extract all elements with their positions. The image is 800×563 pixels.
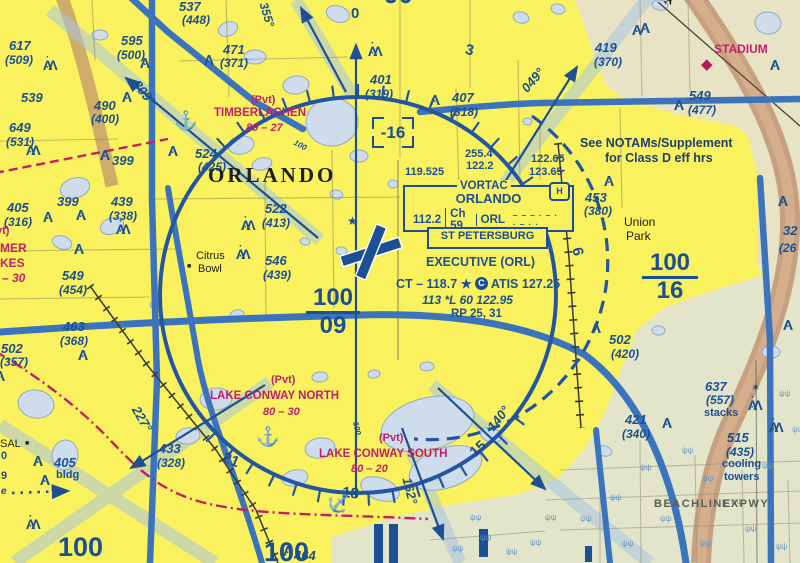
- obstacle-icon-10: Λ: [430, 93, 440, 108]
- label-439-30: (439): [263, 269, 291, 281]
- map-labels: VORTAC ORLANDO 112.2 Ch 59 ORL ‒ ‒ ‒ · ‒…: [0, 0, 800, 563]
- label-370-36: (370): [594, 56, 622, 68]
- aeronautical-chart[interactable]: ψψψψψψψψψψψψψψψψψψψψψψψψψψψψψψψψψψψψψψψψ…: [0, 0, 800, 563]
- hiwas-h-icon: H: [549, 182, 570, 201]
- label-pvt-62: (Pvt): [271, 375, 295, 386]
- obstacle-icon-21: Λ: [33, 454, 43, 469]
- label-522-27: 522: [265, 202, 287, 215]
- obstacle-icon-18: Λ: [778, 194, 788, 209]
- label-355-92: 355°: [258, 1, 277, 28]
- label-490-9: 490: [94, 99, 116, 112]
- lake-conway-south-seaplane-base: LAKE CONWAY SOUTH: [319, 449, 447, 461]
- obstacle-icon-19: Λ: [783, 318, 793, 333]
- label-448-1: (448): [182, 14, 210, 26]
- label-318-34: (318): [450, 106, 478, 118]
- label-371-7: (371): [220, 57, 248, 69]
- obstacle-icon-1: Λ: [204, 53, 214, 68]
- label-454-22: (454): [59, 284, 87, 296]
- timberlachen-seaplane-base: TIMBERLACHEN: [214, 108, 306, 120]
- building-square-icon: ■: [25, 440, 29, 447]
- label-637-43: 637: [705, 380, 727, 393]
- obstacle-icon-2: Λ: [122, 90, 132, 105]
- label-mer-70: MER: [0, 242, 27, 254]
- label-049-94: 049°: [519, 66, 546, 95]
- obstacle-group-icon-4: ΛΛ: [236, 247, 247, 261]
- obstacle-group-icon-5: ΛΛ: [368, 44, 379, 58]
- vortac-name: ORLANDO: [405, 191, 572, 206]
- sector-ceiling: 100: [306, 287, 360, 310]
- label-union-76: Union: [624, 216, 655, 228]
- obstacle-icon-3: Λ: [100, 148, 110, 163]
- label-park-77: Park: [626, 230, 651, 242]
- executive-data-line: 113 *L 60 122.95: [422, 293, 513, 307]
- obstacle-icon-20: Λ: [283, 544, 293, 559]
- label-100-103: 100: [292, 139, 308, 152]
- label-515-47: 515: [727, 431, 749, 444]
- obstacle-icon-9: Λ: [0, 369, 5, 384]
- obstacle-icon-22: Λ: [40, 473, 50, 488]
- label-bowl-75: Bowl: [198, 264, 222, 275]
- notam-note-line2: for Class D eff hrs: [605, 152, 713, 165]
- sector-floor: 09: [306, 315, 360, 338]
- label-beachline-81: BEACHLINE: [654, 499, 732, 510]
- label-413-28: (413): [262, 217, 290, 229]
- stadium-label: STADIUM: [714, 43, 768, 55]
- label-21-89: 21: [220, 450, 241, 470]
- atis-freq: ATIS 127.25: [491, 277, 560, 291]
- label-pvt-65: (Pvt): [379, 433, 403, 444]
- obstacle-icon-15: Λ: [662, 416, 672, 431]
- class-b-sector-100-09: 100 09: [306, 287, 360, 338]
- sector-ceiling: 100: [642, 252, 698, 275]
- label-477-38: (477): [688, 104, 716, 116]
- label-pvt-69: (Pvt): [0, 226, 9, 237]
- label-stacks-83: stacks: [704, 408, 738, 419]
- label-162-97: 162°: [400, 476, 419, 505]
- label-328-50: (328): [157, 457, 185, 469]
- label-15-91: 15: [467, 438, 489, 460]
- obstacle-icon-0: Λ: [140, 56, 150, 71]
- label-100-105: 100: [58, 534, 103, 561]
- label-26-55: (26: [779, 242, 796, 254]
- label-122-2-100: 122.2: [466, 161, 494, 172]
- label-340-46: (340): [622, 428, 650, 440]
- label-557-44: (557): [706, 394, 734, 406]
- obstacle-icon-7: Λ: [74, 242, 84, 257]
- label-420-42: (420): [611, 348, 639, 360]
- label-649-11: 649: [9, 121, 31, 134]
- sector-floor: 16: [642, 280, 698, 303]
- label-0-56: 0: [1, 451, 7, 462]
- lake-conway-north-seaplane-base: LAKE CONWAY NORTH: [210, 391, 339, 403]
- obstacle-icon-17: Λ: [770, 58, 780, 73]
- label-439-17: 439: [111, 195, 133, 208]
- obstacle-group-icon-2: ΛΛ: [116, 222, 127, 236]
- label-419-35: 419: [595, 41, 617, 54]
- label-309-93: 309°: [131, 78, 158, 107]
- obstacle-icon-14: Λ: [591, 321, 601, 336]
- label-546-29: 546: [265, 254, 287, 267]
- mef-bracket: -16: [372, 117, 414, 148]
- label-401-31: 401: [370, 73, 392, 86]
- vortac-type-label: VORTAC: [457, 180, 511, 192]
- label-pvt-59: (Pvt): [251, 95, 275, 106]
- label-524-14: 524: [195, 147, 217, 160]
- label-123-65-102: 123.65: [529, 167, 563, 178]
- label-405-51: 405: [54, 456, 76, 469]
- label-368-24: (368): [60, 335, 88, 347]
- label-32-54: 32: [783, 224, 797, 237]
- anchor-icon-1: ⚓: [256, 428, 280, 447]
- label-140-96: 140°: [485, 404, 512, 433]
- label-400-10: (400): [91, 113, 119, 125]
- label-433-49: 433: [159, 442, 181, 455]
- label-kes-71: KES: [0, 257, 25, 269]
- label-463-23: 463: [63, 320, 85, 333]
- stadium-diamond-icon: ◆: [701, 57, 713, 72]
- tower-freq: CT – 118.7 ★: [396, 276, 472, 291]
- class-b-sector-100-16: 100 16: [642, 252, 698, 303]
- seaplane-pointer-icon: ↓: [352, 455, 359, 468]
- label-119-525-98: 119.525: [405, 167, 444, 178]
- label-399-13: 399: [112, 154, 134, 167]
- obstacle-group-icon-3: ΛΛ: [241, 218, 252, 232]
- executive-airport-name: EXECUTIVE (ORL): [426, 255, 535, 269]
- label-expwy-82: EXPWY: [722, 499, 769, 510]
- right-pattern-note: RP 25, 31: [451, 308, 502, 320]
- label-549-37: 549: [689, 89, 711, 102]
- notam-note-line1: See NOTAMs/Supplement: [580, 137, 733, 150]
- label-549-21: 549: [62, 269, 84, 282]
- label-227-95: 227°: [130, 404, 155, 434]
- label-towers-85: towers: [724, 472, 759, 483]
- obstacle-icon-13: Λ: [604, 174, 614, 189]
- obstacle-icon-4: Λ: [168, 144, 178, 159]
- obstacle-icon-8: Λ: [78, 348, 88, 363]
- obstacle-group-icon-6: ΛΛ: [748, 398, 759, 412]
- label-435-48: (435): [726, 446, 754, 458]
- label-9-57: 9: [1, 471, 7, 482]
- label-bldg-52: bldg: [56, 470, 79, 481]
- label-502-41: 502: [609, 333, 631, 346]
- label-3-87: 3: [464, 42, 475, 58]
- obstacle-group-icon-7: ΛΛ: [769, 420, 780, 434]
- citrus-bowl-square-icon: ■: [187, 263, 191, 270]
- label-471-6: 471: [223, 43, 245, 56]
- vortac-ident: ORL: [476, 214, 509, 226]
- label-255-4-99: 255.4: [465, 149, 493, 160]
- label-30-72: – 30: [2, 272, 25, 284]
- label-e-58: e: [1, 487, 7, 497]
- executive-ct-row: CT – 118.7 ★ C ATIS 127.25: [396, 276, 560, 291]
- label-421-45: 421: [625, 413, 647, 426]
- label-319-32: (319): [365, 88, 393, 100]
- airplane-icon: ✈: [660, 0, 679, 10]
- label-122-65-101: 122.65: [531, 154, 565, 165]
- vortac-freq: 112.2: [409, 214, 445, 226]
- class-c-icon: C: [475, 277, 488, 290]
- label-citrus-74: Citrus: [196, 251, 225, 262]
- label-80-30-64: 80 – 30: [263, 407, 300, 418]
- obstacle-icon-6: Λ: [76, 208, 86, 223]
- label-6-88: 6: [569, 246, 585, 257]
- obstacle-group-icon-0: ΛΛ: [43, 58, 54, 72]
- label-100-104: 100: [351, 421, 362, 436]
- label-539-8: 539: [21, 91, 43, 104]
- label-0-86: 0: [351, 6, 359, 21]
- obstacle-group-icon-1: ΛΛ: [26, 143, 37, 157]
- beacon-star-icon: ★: [347, 215, 358, 227]
- label-357-26: (357): [0, 356, 28, 368]
- obstacle-icon-16: Λ: [640, 21, 650, 36]
- label-617-2: 617: [9, 39, 31, 52]
- label-405-19: 405: [7, 201, 29, 214]
- label-407-33: 407: [452, 91, 474, 104]
- st-petersburg-box: ST PETERSBURG: [427, 227, 548, 249]
- label-595-4: 595: [121, 34, 143, 47]
- obstacle-icon-5: Λ: [43, 210, 53, 225]
- label-380-40: (380): [584, 205, 612, 217]
- label-cooling-84: cooling: [722, 459, 761, 470]
- label-502-25: 502: [1, 342, 23, 355]
- cut-place-label: SAL: [0, 439, 21, 450]
- label-509-3: (509): [5, 54, 33, 66]
- label-89-27-61: 89 – 27: [246, 123, 283, 134]
- label-453-39: 453: [585, 191, 607, 204]
- orlando-city-label: ORLANDO: [208, 165, 336, 186]
- obstacle-icon-12: Λ: [674, 98, 684, 113]
- label-90-107: 90°: [384, 0, 423, 7]
- obstacle-group-icon-8: ΛΛ: [26, 517, 37, 531]
- anchor-icon-0: ⚓: [174, 112, 198, 131]
- label-537-0: 537: [179, 0, 201, 13]
